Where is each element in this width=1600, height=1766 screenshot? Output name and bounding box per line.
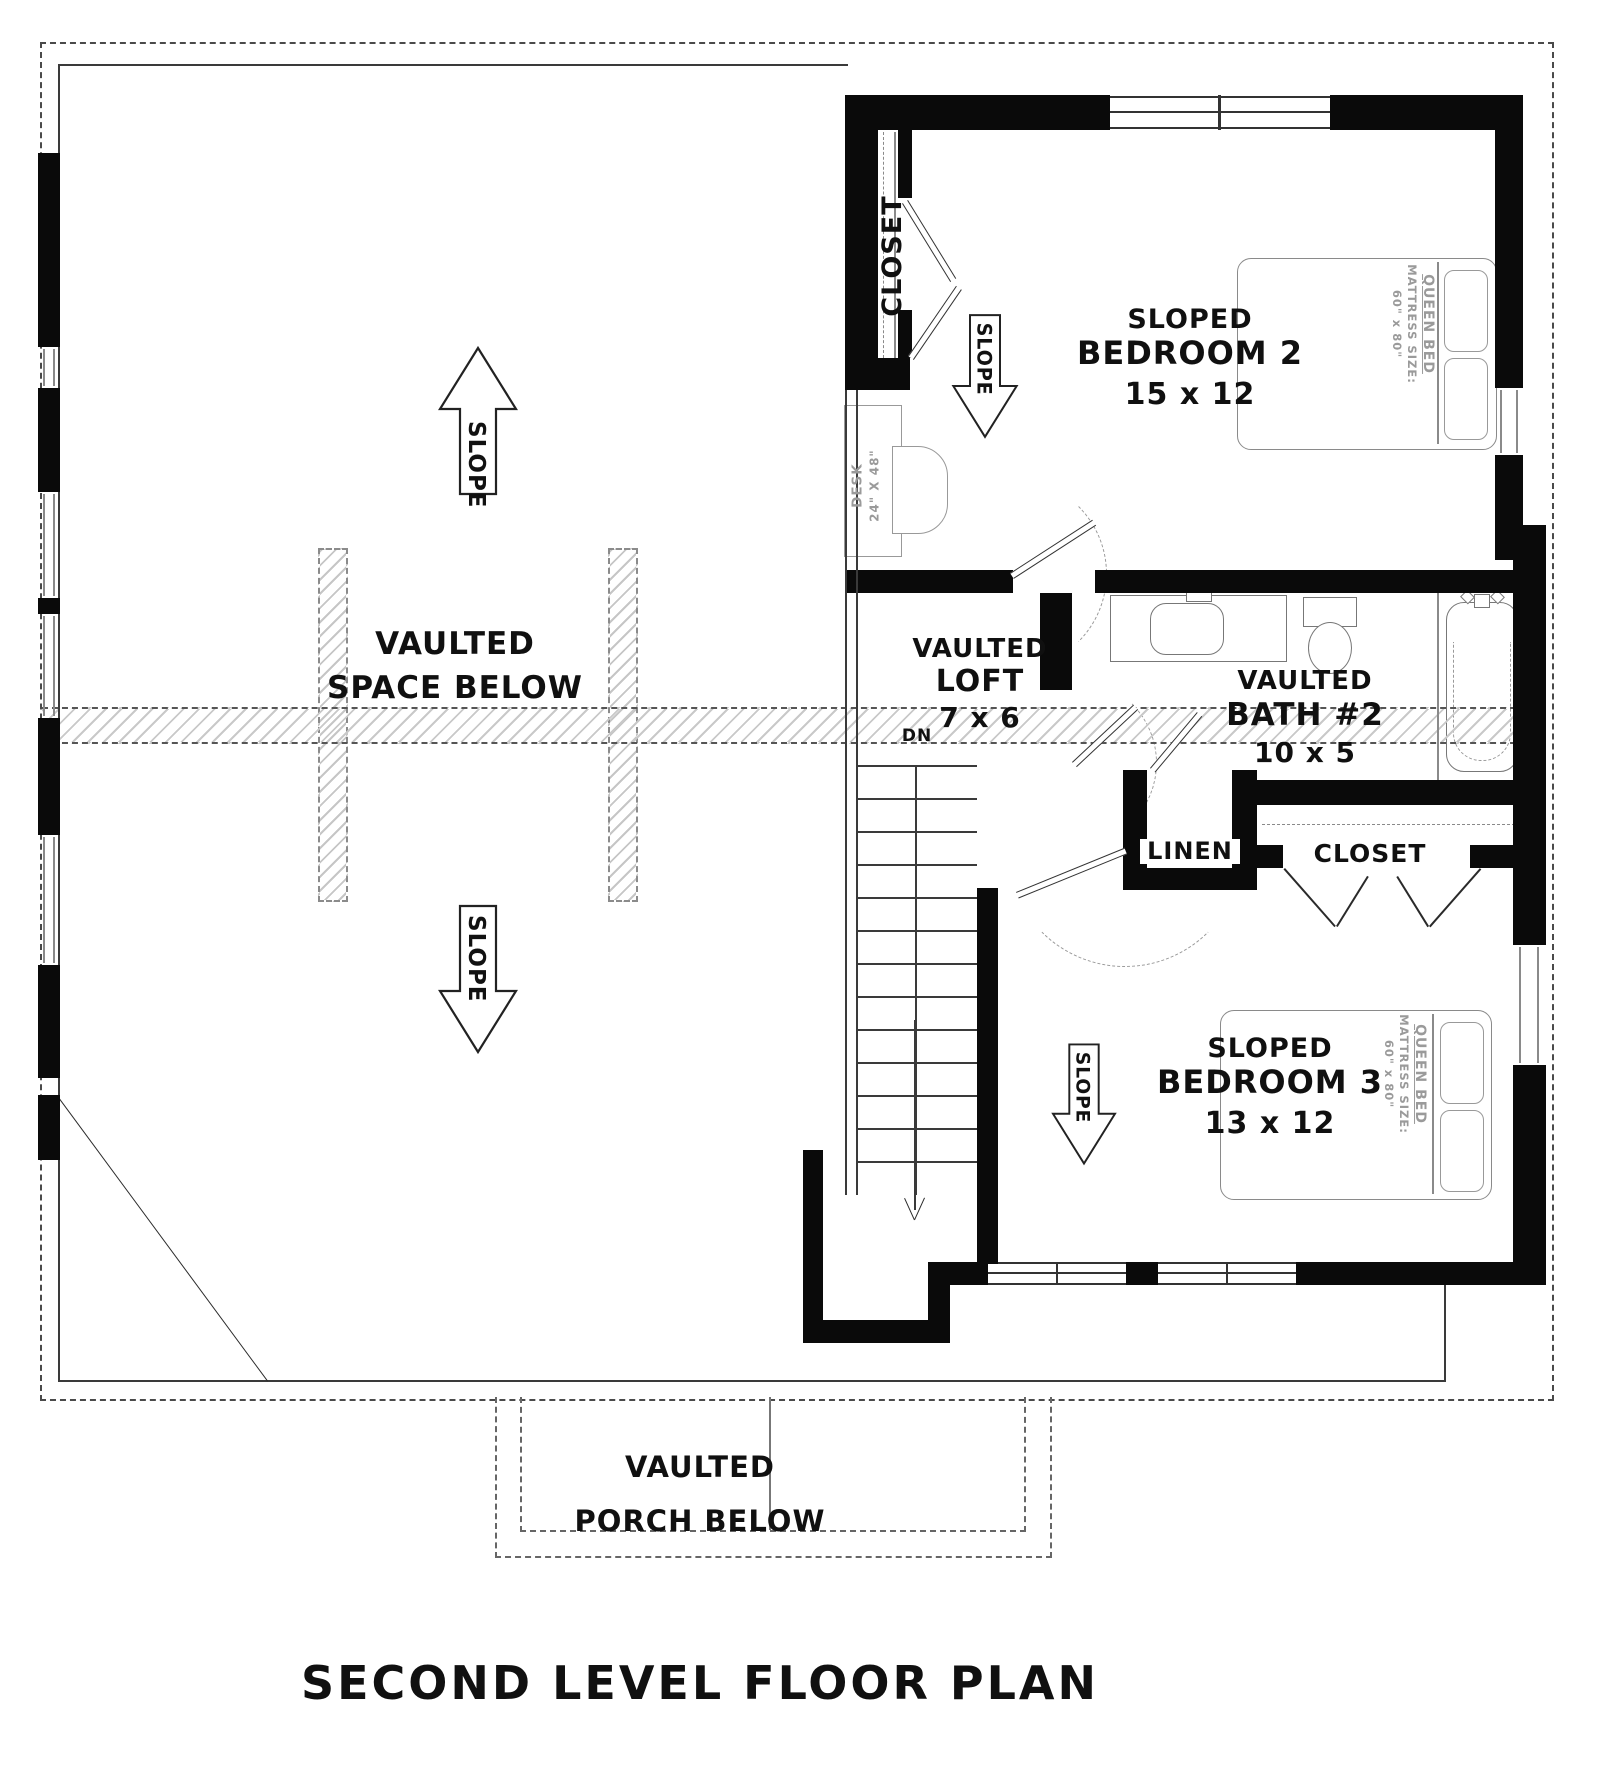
wall <box>977 888 998 1264</box>
vaulted-space-label: SPACE BELOW <box>255 672 655 704</box>
wall <box>1257 845 1283 868</box>
wall <box>845 95 878 390</box>
desk-label: DESK 24" X 48" <box>849 426 882 546</box>
window-line <box>1519 947 1521 1063</box>
wall <box>1513 1065 1546 1285</box>
wall <box>1495 455 1523 525</box>
wall-pier <box>38 598 60 614</box>
stair-dn-label: DN <box>895 728 939 746</box>
wall <box>845 570 1013 593</box>
window-line <box>43 494 45 596</box>
desk-chair <box>892 446 948 534</box>
wall <box>1126 1262 1158 1285</box>
bedroom2-label: BEDROOM 2 <box>1015 337 1365 370</box>
window-line <box>1500 390 1502 453</box>
slope-arrow-down: SLOPE <box>1048 1042 1120 1166</box>
loft-label: VAULTED <box>880 636 1080 663</box>
bath-dimensions: 10 x 5 <box>1205 738 1405 767</box>
bedroom3-label: SLOPED <box>1120 1035 1420 1063</box>
pillow <box>1440 1110 1484 1192</box>
window-line <box>53 349 55 386</box>
thin-line <box>1444 1285 1446 1382</box>
wall <box>1495 95 1523 388</box>
desk-dimensions: 24" X 48" <box>867 426 883 546</box>
slope-arrow-up: SLOPE <box>436 345 520 497</box>
wall <box>1296 1262 1546 1285</box>
pillow <box>1444 270 1488 352</box>
slope-arrow-label: SLOPE <box>973 323 996 396</box>
tub-alcove-line <box>1437 593 1439 780</box>
thin-line <box>58 64 848 66</box>
bedroom3-dimensions: 13 x 12 <box>1120 1108 1420 1139</box>
bath-label: BATH #2 <box>1205 699 1405 731</box>
window-line <box>43 349 45 386</box>
bed-size-label: QUEEN BED MATTRESS SIZE: 60" x 80" <box>1389 259 1437 389</box>
wall <box>845 358 910 390</box>
wall <box>928 1262 950 1320</box>
wall <box>1470 845 1513 868</box>
linen-label: LINEN <box>1140 839 1240 864</box>
wall <box>803 1150 823 1343</box>
bed-mattress-label: MATTRESS SIZE: <box>1404 259 1419 389</box>
wall-pier <box>38 718 60 835</box>
bedroom2-label: SLOPED <box>1040 306 1340 334</box>
wall-pier <box>38 965 60 1078</box>
bed-dimensions: 60" x 80" <box>1389 259 1404 389</box>
closet-rod-line <box>1262 824 1520 825</box>
tub-faucet <box>1474 594 1490 608</box>
slope-arrow-label: SLOPE <box>463 421 489 509</box>
wall-pier <box>38 388 60 492</box>
pillow <box>1444 358 1488 440</box>
wall-pier <box>38 1095 60 1160</box>
bedroom2-dimensions: 15 x 12 <box>1040 379 1340 410</box>
window-line <box>53 616 55 716</box>
porch-label: PORCH BELOW <box>500 1506 900 1536</box>
desk-name: DESK <box>849 426 867 546</box>
stair-rail <box>845 390 847 1195</box>
wall <box>1095 570 1546 593</box>
window-line <box>1537 947 1539 1063</box>
window-line <box>53 494 55 596</box>
window-line <box>53 837 55 963</box>
closet-label: CLOSET <box>879 176 907 336</box>
porch-label: VAULTED <box>500 1452 900 1482</box>
window-line <box>43 837 45 963</box>
headboard-line <box>1437 262 1439 444</box>
vaulted-space-label: VAULTED <box>255 628 655 660</box>
slope-arrow-down: SLOPE <box>950 312 1020 440</box>
pillow <box>1440 1022 1484 1104</box>
slope-arrow-down: SLOPE <box>436 903 520 1055</box>
loft-label: LOFT <box>880 666 1080 697</box>
bath-label: VAULTED <box>1205 668 1405 695</box>
wall <box>1232 780 1546 805</box>
slope-arrow-label: SLOPE <box>1072 1052 1093 1123</box>
wall <box>950 1262 988 1285</box>
bedroom3-label: BEDROOM 3 <box>1095 1066 1445 1099</box>
wall-pier <box>38 153 60 347</box>
page-title: SECOND LEVEL FLOOR PLAN <box>95 1660 1305 1708</box>
floor-plan: QUEEN BED MATTRESS SIZE: 60" x 80" QUEEN… <box>0 0 1600 1766</box>
sink <box>1150 603 1224 655</box>
stair-direction-line <box>914 1020 916 1210</box>
wall <box>803 1320 950 1343</box>
wall <box>1495 525 1546 560</box>
headboard-line <box>1432 1014 1434 1194</box>
closet-label: CLOSET <box>1305 841 1435 867</box>
bed-label: QUEEN BED <box>1419 259 1437 389</box>
wall <box>1513 560 1546 945</box>
slope-arrow-label: SLOPE <box>463 915 489 1003</box>
window-line <box>43 616 45 716</box>
window-line <box>1516 390 1518 453</box>
wall <box>845 95 1110 130</box>
